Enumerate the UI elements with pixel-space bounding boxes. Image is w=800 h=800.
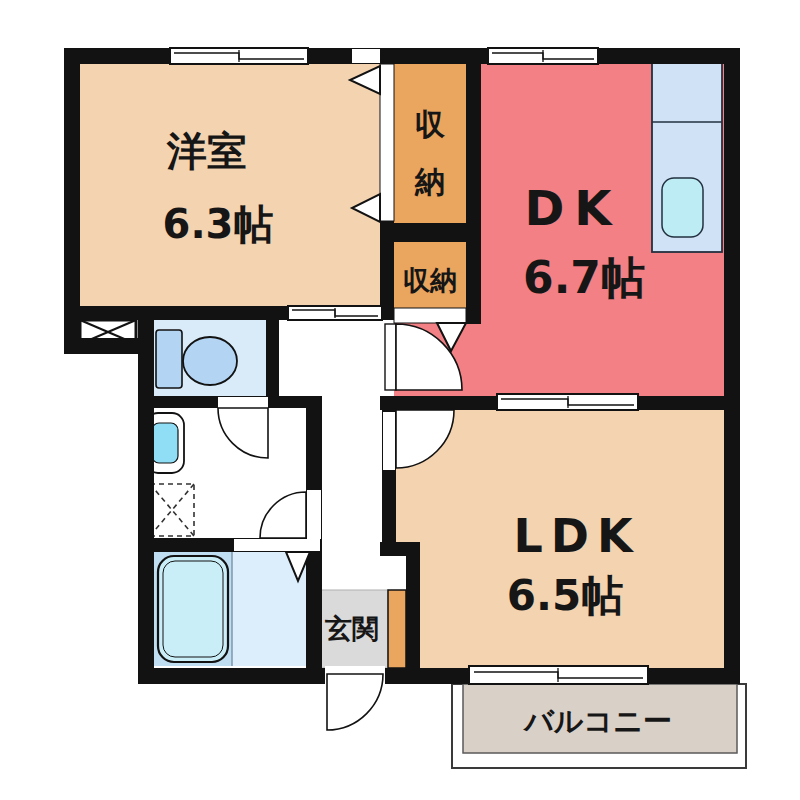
sliding-door-dk-ldk <box>497 394 638 410</box>
label-western-room: 洋室 <box>166 128 247 174</box>
label-storage-upper-char2: 納 <box>414 164 445 199</box>
wall-segment <box>138 318 154 684</box>
washbasin-bowl <box>152 423 178 463</box>
wall-opening <box>307 490 321 539</box>
closet-door-strip <box>380 64 394 221</box>
wall-opening <box>234 539 320 551</box>
kitchen-sink <box>662 178 703 237</box>
wall-segment <box>380 542 420 556</box>
wall-segment <box>406 556 420 668</box>
wall-segment <box>266 320 279 408</box>
wall-opening <box>218 397 268 408</box>
bathtub <box>158 556 228 662</box>
sliding-door-western <box>288 306 382 320</box>
wall-opening <box>383 412 395 470</box>
window-western-top <box>170 48 308 64</box>
label-ldk-size: 6.5帖 <box>507 571 623 620</box>
shoe-cabinet <box>388 590 406 668</box>
storage-lower-door <box>394 308 466 323</box>
label-western-size: 6.3帖 <box>163 201 274 247</box>
label-ldk: LDK <box>513 509 640 563</box>
toilet-tank <box>156 330 182 388</box>
label-storage-upper-char1: 収 <box>415 107 445 142</box>
label-dk: DK <box>524 180 621 236</box>
floor-plan: 洋室 6.3帖 DK 6.7帖 LDK 6.5帖 収 納 収納 玄関 バルコニー <box>0 0 800 800</box>
wall-segment <box>380 396 497 410</box>
wall-segment <box>638 396 724 410</box>
label-dk-size: 6.7帖 <box>523 252 645 303</box>
label-balcony: バルコニー <box>522 704 672 738</box>
label-entrance: 玄関 <box>324 613 379 644</box>
wall-segment <box>466 62 481 324</box>
wall-opening <box>352 49 380 63</box>
door-arc-entrance <box>327 674 383 730</box>
window-dk-top <box>488 48 598 64</box>
wall-segment <box>138 668 740 684</box>
wall-segment <box>64 48 740 64</box>
wall-segment <box>380 223 466 242</box>
door-leaf-dk <box>385 324 396 390</box>
bathtub-outer <box>158 556 228 662</box>
floor-plan-canvas: 洋室 6.3帖 DK 6.7帖 LDK 6.5帖 収 納 収納 玄関 バルコニー <box>0 0 800 800</box>
window-ldk-balcony <box>469 666 648 684</box>
kitchen-unit <box>652 62 722 252</box>
toilet-bowl <box>183 337 237 385</box>
wall-segment <box>724 48 740 684</box>
label-storage-lower: 収納 <box>403 265 457 296</box>
room-western <box>80 62 380 308</box>
